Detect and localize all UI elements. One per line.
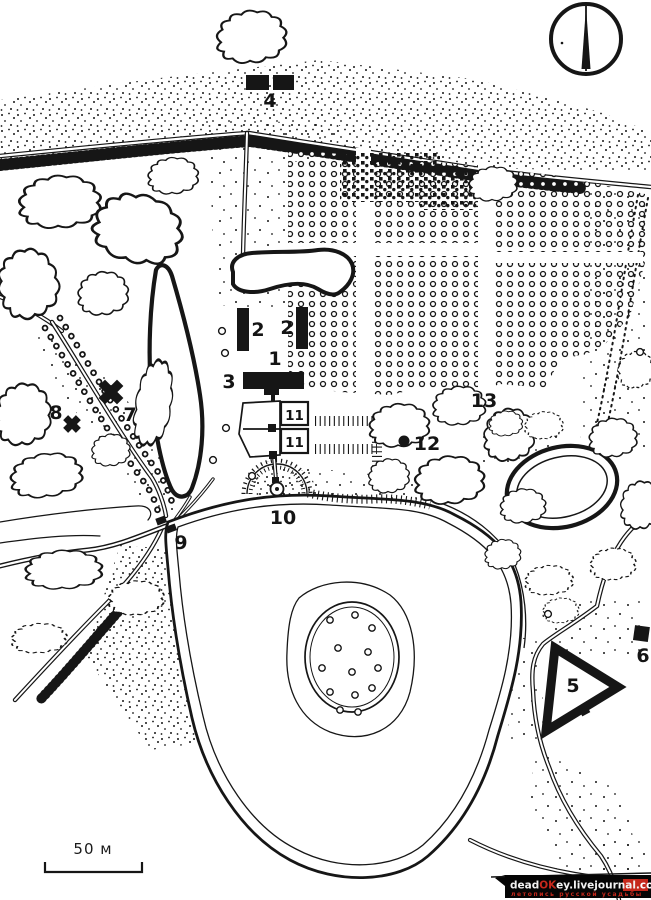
map-label-6: 6 [636,645,649,667]
tree-above-4 [217,11,286,64]
map-label-4: 4 [263,90,276,112]
island [287,582,414,736]
watermark-site: deadOKey.livejournal.com [510,880,651,892]
wing-building-right [296,307,308,349]
main-house [243,372,304,395]
map-label-3: 3 [222,371,235,393]
watermark: deadOKey.livejournal.com летопись русско… [491,873,651,898]
scale-bar: 50 м [45,840,142,872]
scale-label: 50 м [73,840,112,858]
building-5-triangle [546,648,618,731]
watermark-tagline: летопись русской усадьбы [511,891,643,898]
map-label-9: 9 [174,532,187,554]
building-6 [633,625,650,642]
map-label-11a: 11 [285,408,304,424]
map-label-8: 8 [49,402,62,424]
estate-plan-map: 1 2 2 3 4 5 6 7 8 9 10 11 11 12 13 50 м … [0,0,651,900]
map-label-7: 7 [123,404,136,426]
map-label-11b: 11 [285,435,304,451]
map-label-10: 10 [270,507,296,529]
map-label-5: 5 [566,675,579,697]
map-canvas: 1 2 2 3 4 5 6 7 8 9 10 11 11 12 13 50 м … [0,0,651,900]
map-label-2b: 2 [280,317,293,339]
compass-rose [551,4,621,74]
wing-building-left [237,308,249,351]
map-label-2a: 2 [251,319,264,341]
map-label-13: 13 [471,390,497,412]
map-label-12: 12 [414,433,440,455]
orchard-dense-block [420,166,478,210]
point-12 [399,436,410,447]
map-label-1: 1 [268,348,281,370]
